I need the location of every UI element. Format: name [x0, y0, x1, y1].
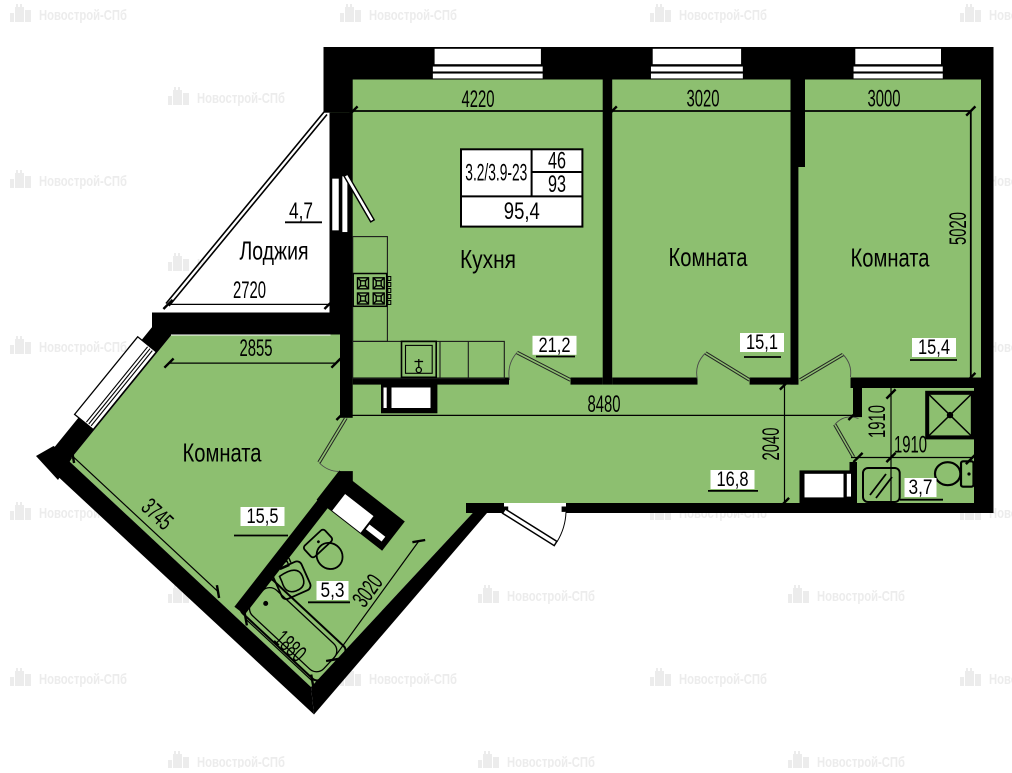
svg-text:Новострой-СПб: Новострой-СПб: [369, 671, 457, 688]
svg-text:4,7: 4,7: [289, 198, 313, 224]
svg-text:Новострой-СПб: Новострой-СПб: [679, 671, 767, 688]
svg-text:Новострой-СПб: Новострой-СПб: [507, 754, 595, 768]
svg-text:2855: 2855: [240, 335, 273, 362]
svg-text:Кухня: Кухня: [460, 244, 516, 274]
svg-text:Новострой-СПб: Новострой-СПб: [989, 7, 1012, 24]
svg-text:16,8: 16,8: [717, 468, 749, 491]
svg-text:Новострой-СПб: Новострой-СПб: [369, 7, 457, 24]
svg-text:Новострой-СПб: Новострой-СПб: [39, 671, 127, 688]
svg-text:2720: 2720: [233, 277, 266, 304]
svg-text:2040: 2040: [758, 428, 785, 461]
svg-text:1910: 1910: [894, 431, 927, 458]
svg-text:5020: 5020: [945, 212, 972, 245]
svg-text:Новострой-СПб: Новострой-СПб: [817, 588, 905, 605]
svg-text:15,4: 15,4: [918, 336, 950, 359]
svg-text:15,1: 15,1: [746, 331, 778, 354]
svg-text:Новострой-СПб: Новострой-СПб: [39, 173, 127, 190]
svg-text:1910: 1910: [864, 405, 891, 438]
svg-text:8480: 8480: [588, 391, 621, 418]
svg-text:Лоджия: Лоджия: [240, 235, 309, 265]
svg-text:3020: 3020: [687, 86, 720, 113]
svg-text:Новострой-СПб: Новострой-СПб: [39, 7, 127, 24]
svg-text:Новострой-СПб: Новострой-СПб: [679, 7, 767, 24]
svg-text:5,3: 5,3: [321, 579, 345, 602]
svg-text:95,4: 95,4: [504, 198, 540, 225]
svg-text:Комната: Комната: [669, 242, 748, 272]
svg-text:3000: 3000: [868, 86, 901, 113]
svg-text:21,2: 21,2: [539, 334, 571, 357]
svg-text:Новострой-СПб: Новострой-СПб: [197, 90, 285, 107]
svg-text:Новострой-СПб: Новострой-СПб: [507, 588, 595, 605]
svg-text:15,5: 15,5: [247, 505, 279, 528]
svg-text:Новострой-СПб: Новострой-СПб: [989, 671, 1012, 688]
svg-text:Комната: Комната: [183, 438, 262, 468]
svg-text:Комната: Комната: [851, 243, 930, 273]
svg-text:Новострой-СПб: Новострой-СПб: [817, 754, 905, 768]
svg-text:Новострой-СПб: Новострой-СПб: [197, 754, 285, 768]
svg-text:3.2/3.9-23: 3.2/3.9-23: [465, 160, 527, 187]
svg-text:4220: 4220: [462, 86, 495, 113]
svg-text:3,7: 3,7: [909, 476, 933, 499]
svg-text:Новострой-СПб: Новострой-СПб: [39, 339, 127, 356]
svg-text:93: 93: [548, 171, 566, 198]
